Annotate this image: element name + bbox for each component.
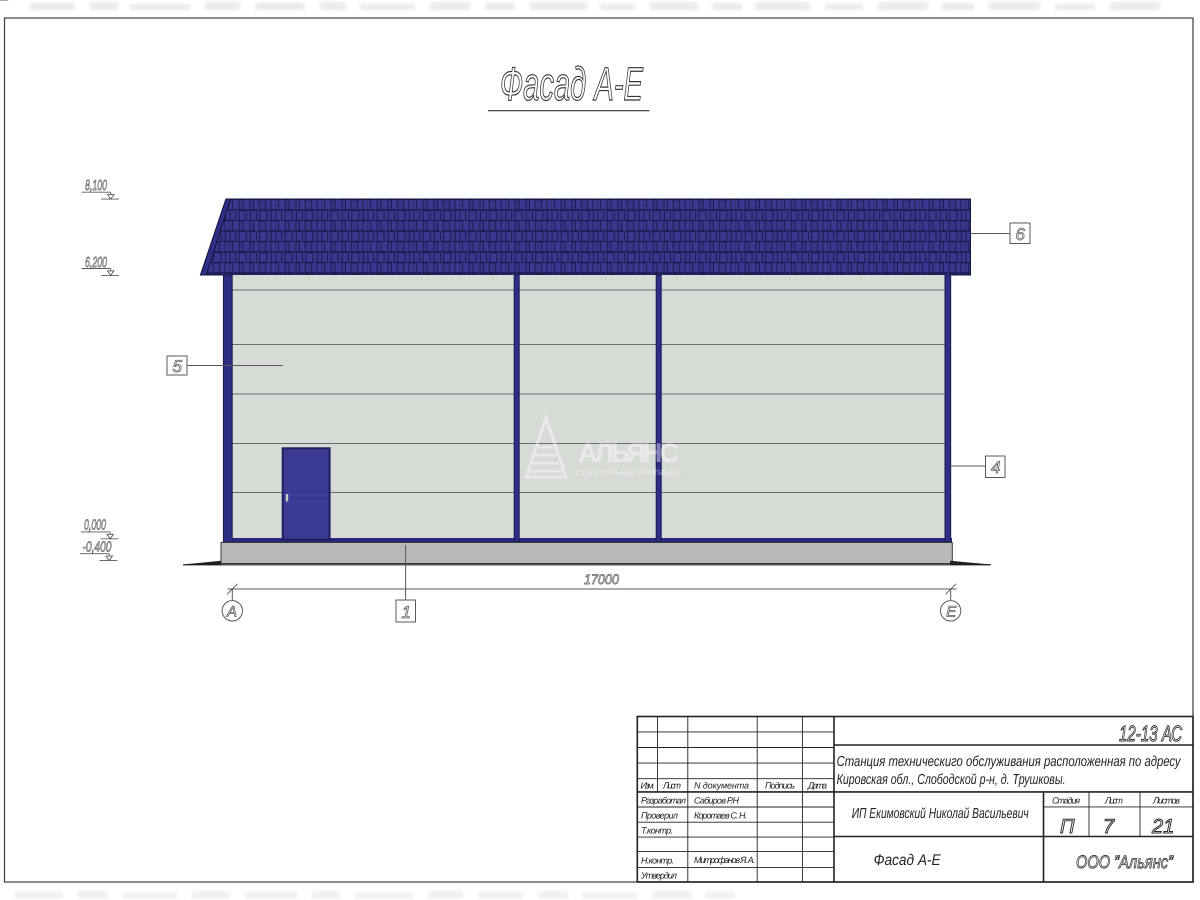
svg-text:12-13 АС: 12-13 АС <box>1119 721 1182 746</box>
svg-text:Е: Е <box>946 604 957 621</box>
svg-text:ООО ”Альянс”: ООО ”Альянс” <box>1076 852 1174 872</box>
svg-text:7: 7 <box>1103 816 1115 838</box>
svg-text:Подпись: Подпись <box>765 781 795 791</box>
svg-text:Лист: Лист <box>662 781 682 791</box>
svg-text:Утвердил: Утвердил <box>640 871 677 881</box>
svg-text:Фасад А-Е: Фасад А-Е <box>500 57 643 110</box>
svg-text:Лист: Лист <box>1104 796 1124 806</box>
svg-text:Митрофанов Я. А.: Митрофанов Я. А. <box>694 855 755 865</box>
svg-text:4: 4 <box>991 458 1000 477</box>
svg-text:6,200: 6,200 <box>85 255 107 271</box>
svg-text:Н.контр.: Н.контр. <box>641 856 674 866</box>
svg-text:-0,400: -0,400 <box>83 540 112 556</box>
svg-text:Стадия: Стадия <box>1052 796 1080 806</box>
svg-text:5: 5 <box>173 357 183 376</box>
svg-text:Проверил: Проверил <box>641 811 678 821</box>
svg-text:1: 1 <box>402 603 411 622</box>
svg-text:А: А <box>226 604 237 621</box>
svg-text:Коротаев С. Н.: Коротаев С. Н. <box>694 811 747 821</box>
svg-text:17000: 17000 <box>584 571 619 587</box>
svg-text:Кировская обл., Слободской р-н: Кировская обл., Слободской р-н, д. Трушк… <box>837 772 1066 788</box>
svg-text:N документа: N документа <box>694 781 749 791</box>
svg-text:ИП Екимовский Николай Васильев: ИП Екимовский Николай Васильевич <box>852 806 1029 822</box>
svg-text:Листов: Листов <box>1152 796 1180 806</box>
svg-text:АЛЬЯНС: АЛЬЯНС <box>578 438 679 468</box>
svg-text:Разработал: Разработал <box>641 796 686 806</box>
svg-text:Изм.: Изм. <box>641 781 655 791</box>
svg-text:Т.контр.: Т.контр. <box>641 826 673 836</box>
svg-text:8,100: 8,100 <box>85 178 107 194</box>
svg-text:Сабиров Р.Н: Сабиров Р.Н <box>694 796 740 806</box>
svg-text:П: П <box>1060 816 1075 838</box>
svg-text:строительная компания: строительная компания <box>576 467 681 478</box>
svg-text:Дата: Дата <box>807 781 827 791</box>
svg-text:6: 6 <box>1016 225 1026 244</box>
svg-text:Фасад А-Е: Фасад А-Е <box>874 852 942 869</box>
svg-text:0,000: 0,000 <box>84 518 106 534</box>
svg-text:Станция техническиго обслужива: Станция техническиго обслуживания распол… <box>837 754 1182 770</box>
svg-text:21: 21 <box>1151 816 1174 838</box>
